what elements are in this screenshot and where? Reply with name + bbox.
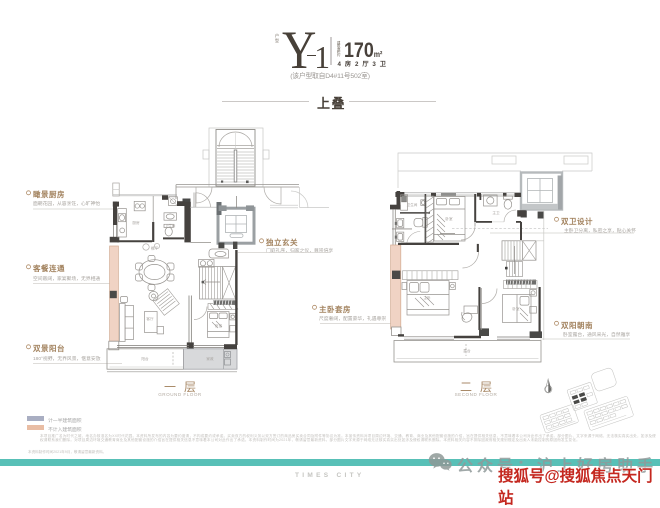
svg-text:主卧: 主卧 xyxy=(423,295,431,300)
svg-text:卫生间: 卫生间 xyxy=(407,202,418,207)
svg-text:阳台: 阳台 xyxy=(141,356,149,361)
svg-text:厨房: 厨房 xyxy=(132,220,140,225)
svg-text:卧室: 卧室 xyxy=(215,323,223,328)
svg-text:家政: 家政 xyxy=(206,356,214,361)
svg-text:餐厅: 餐厅 xyxy=(151,246,159,251)
svg-text:卧室: 卧室 xyxy=(445,216,453,221)
svg-text:露台: 露台 xyxy=(463,348,471,353)
svg-text:卧室: 卧室 xyxy=(512,306,520,311)
svg-text:客厅: 客厅 xyxy=(146,316,154,321)
svg-text:卫生间: 卫生间 xyxy=(165,223,176,228)
svg-text:主卫: 主卫 xyxy=(492,210,500,215)
